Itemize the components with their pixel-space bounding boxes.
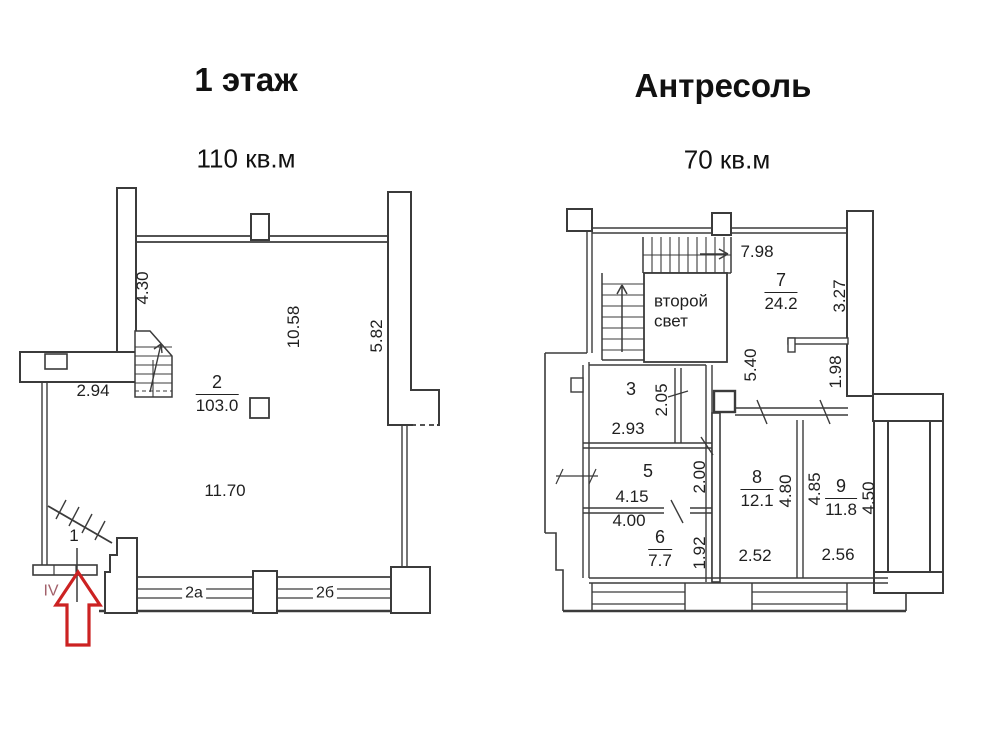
room-6-label-area: 7.7 bbox=[648, 550, 672, 571]
room-6-label-number: 6 bbox=[648, 527, 672, 550]
room-5-number: 5 bbox=[643, 461, 653, 483]
right-plan-stairs-top bbox=[643, 237, 731, 273]
window-2a-label: 2a bbox=[182, 583, 206, 602]
wall-notch-right-plan bbox=[571, 378, 583, 392]
room-9-label-number: 9 bbox=[825, 476, 857, 499]
floor-plan-linework bbox=[0, 0, 1000, 750]
dim-7-98: 7.98 bbox=[740, 242, 773, 262]
room-2-label-area: 103.0 bbox=[196, 395, 239, 416]
dim-4-80: 4.80 bbox=[776, 474, 796, 507]
floor-plan-page: 1 этаж 110 кв.м Антресоль 70 кв.м второй… bbox=[0, 0, 1000, 750]
dim-2-05: 2.05 bbox=[652, 383, 672, 416]
dim-4-15: 4.15 bbox=[615, 487, 648, 507]
room-9-label: 911.8 bbox=[825, 476, 857, 520]
room-8-label: 812.1 bbox=[740, 467, 773, 511]
dim-2-93: 2.93 bbox=[611, 419, 644, 439]
room-3-number: 3 bbox=[626, 379, 636, 401]
right-plan-title: Антресоль bbox=[635, 67, 812, 105]
right-plan-pilaster-topleft bbox=[567, 209, 592, 231]
entrance-roman-numeral: IV bbox=[43, 581, 58, 600]
entrance-arrow bbox=[56, 572, 100, 645]
room-7-label: 724.2 bbox=[764, 270, 797, 314]
left-wall-window-mark bbox=[556, 469, 598, 484]
dim-5-82: 5.82 bbox=[367, 319, 387, 352]
left-plan-wall-right bbox=[388, 192, 439, 425]
right-plan-wall-right bbox=[847, 211, 873, 396]
dim-4-00: 4.00 bbox=[612, 511, 645, 531]
dim-2-00: 2.00 bbox=[690, 460, 710, 493]
dim-5-40: 5.40 bbox=[741, 348, 761, 381]
room-2-label: 2103.0 bbox=[196, 372, 239, 416]
left-plan-pilaster-topleft bbox=[117, 188, 136, 352]
room-2-label-number: 2 bbox=[196, 372, 239, 395]
shelf-wall bbox=[788, 338, 848, 344]
dim-2-56: 2.56 bbox=[821, 545, 854, 565]
room-1-number: 1 bbox=[69, 526, 78, 546]
room-7-label-area: 24.2 bbox=[764, 293, 797, 314]
right-plan-area: 70 кв.м bbox=[684, 145, 770, 176]
left-plan-block-bottomright bbox=[391, 567, 430, 613]
room-9-label-area: 11.8 bbox=[825, 499, 857, 520]
dim-11-70: 11.70 bbox=[204, 481, 245, 501]
dim-2-52: 2.52 bbox=[738, 546, 771, 566]
left-plan-stairs bbox=[135, 331, 172, 397]
right-plan-pillar-top-middle bbox=[712, 213, 731, 235]
left-plan-pillar-top-middle bbox=[251, 214, 269, 240]
room-7-label-number: 7 bbox=[764, 270, 797, 293]
room2-column bbox=[250, 398, 269, 418]
left-plan-pillar-bottom-middle bbox=[253, 571, 277, 613]
second-light-label: второй свет bbox=[654, 292, 708, 333]
right-plan-stairs-left bbox=[602, 273, 644, 360]
left-plan-block-bottomleft bbox=[105, 538, 137, 613]
room-8-label-area: 12.1 bbox=[740, 490, 773, 511]
dim-10-58: 10.58 bbox=[284, 306, 304, 349]
right-plan-pillar-middle bbox=[714, 391, 735, 412]
dim-4-30: 4.30 bbox=[133, 271, 153, 304]
windows-right-plan bbox=[592, 592, 847, 604]
room-8-label-number: 8 bbox=[740, 467, 773, 490]
dim-1-98: 1.98 bbox=[826, 355, 846, 388]
dim-4-85: 4.85 bbox=[805, 472, 825, 505]
window-2b-label: 2б bbox=[313, 583, 337, 602]
left-plan-title: 1 этаж bbox=[194, 61, 297, 99]
dim-4-50: 4.50 bbox=[859, 481, 879, 514]
room-6-label: 67.7 bbox=[648, 527, 672, 571]
dim-2-94: 2.94 bbox=[76, 381, 109, 401]
dim-1-92: 1.92 bbox=[690, 536, 710, 569]
wall-notch bbox=[45, 354, 67, 369]
entrance-threshold bbox=[33, 565, 97, 575]
left-plan-wall-band-left bbox=[20, 352, 136, 382]
left-plan-area: 110 кв.м bbox=[197, 144, 296, 175]
dim-3-27: 3.27 bbox=[830, 279, 850, 312]
